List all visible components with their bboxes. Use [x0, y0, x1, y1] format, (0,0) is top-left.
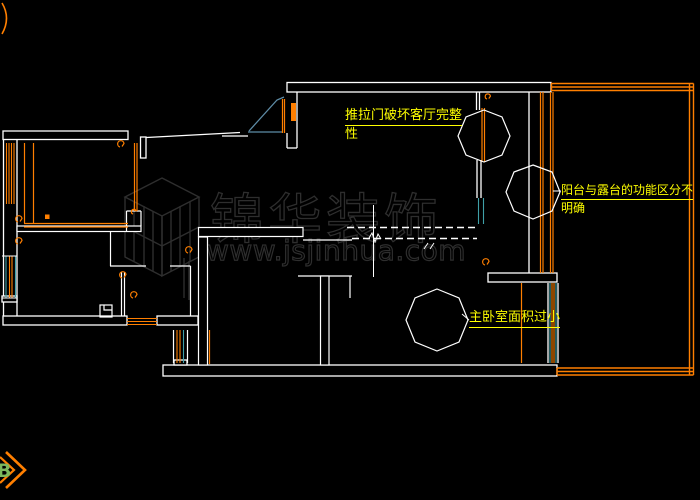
annotation-leaders: [462, 191, 561, 320]
annotation-master-bedroom-text: 主卧室面积过小: [469, 309, 560, 328]
door-swing-symbol: [186, 247, 192, 253]
door-swing-symbol: [118, 141, 124, 147]
annotation-balcony-line2: 明确: [561, 200, 693, 217]
cad-canvas: 锦华装饰 www.jsjinhua.com: [0, 0, 700, 500]
annotation-balcony: 阳台与露台的功能区分不 明确: [561, 182, 693, 217]
column-octagon: [506, 165, 560, 219]
corner-arc-decoration: [2, 3, 7, 34]
balcony-railing: [551, 84, 694, 376]
door-frame-block: [291, 103, 296, 121]
annotation-sliding-door-line1: 推拉门破坏客厅完整: [345, 107, 462, 126]
north-arrow-marker: B: [0, 452, 25, 488]
door-swing-symbol: [483, 259, 489, 265]
annotation-sliding-door-line2: 性: [345, 126, 462, 144]
entry-door: [248, 97, 296, 133]
watermark-website: www.jsjinhua.com: [206, 234, 466, 267]
watermark-logo-cube-icon: [125, 178, 199, 300]
door-swing-symbol: [485, 94, 490, 99]
column-octagon: [406, 289, 468, 351]
door-swing-arc: [248, 97, 284, 132]
annotation-master-bedroom: 主卧室面积过小: [469, 309, 560, 328]
door-swing-symbol: [45, 215, 50, 220]
door-leaf: [283, 99, 285, 133]
door-swing-symbol: [131, 292, 137, 298]
annotation-balcony-line1: 阳台与露台的功能区分不: [561, 182, 693, 200]
annotation-sliding-door: 推拉门破坏客厅完整 性: [345, 107, 462, 144]
watermark: 锦华装饰 www.jsjinhua.com: [125, 178, 466, 300]
floor-plan: 锦华装饰 www.jsjinhua.com: [0, 0, 700, 500]
marker-label: B: [0, 460, 11, 482]
